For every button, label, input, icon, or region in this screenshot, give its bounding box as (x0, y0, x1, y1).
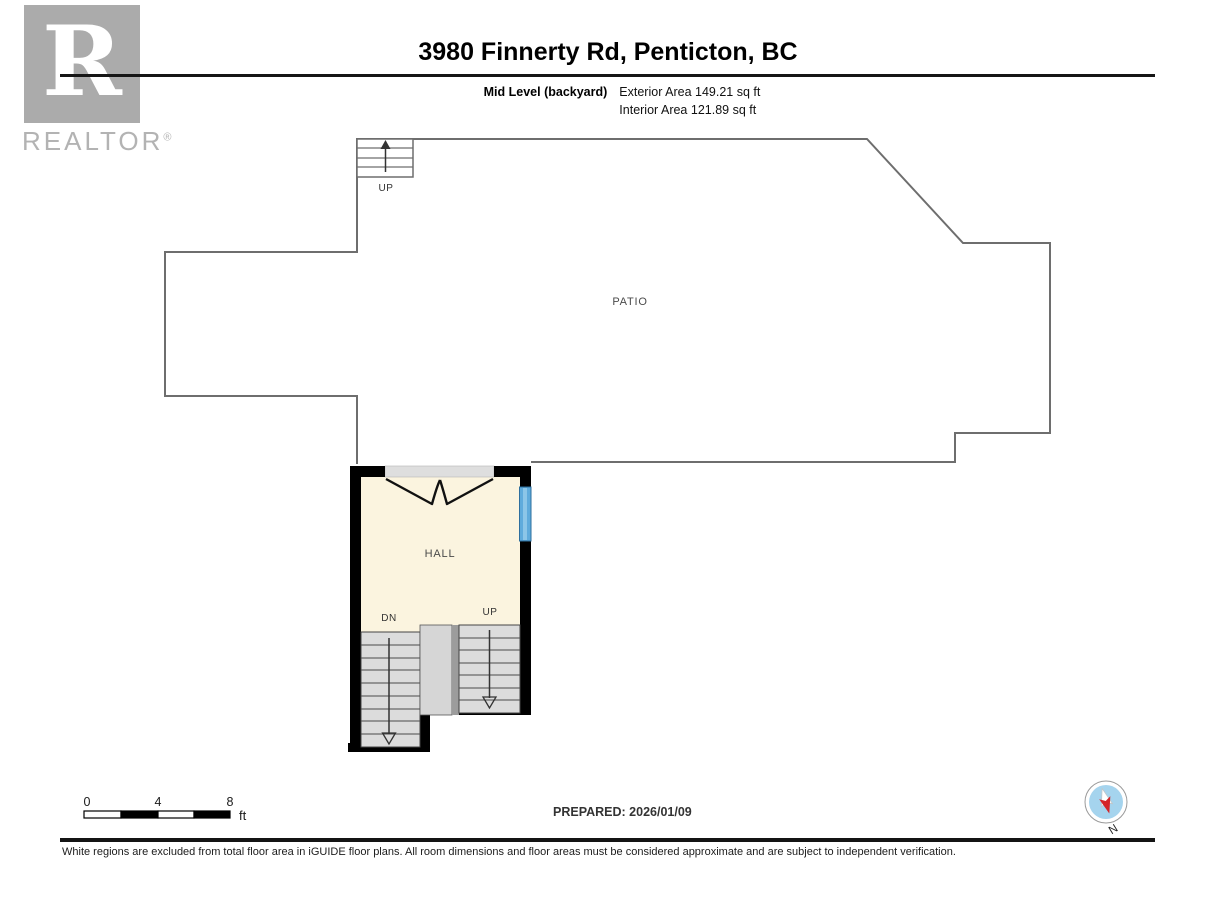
room-label-hall: HALL (425, 548, 456, 560)
floorplan-drawing: UP PATIO HALL (0, 0, 1216, 912)
stairs-up (459, 625, 520, 713)
patio-stairs-up (357, 139, 413, 177)
stair-landing (420, 625, 452, 715)
stairs-up-label: UP (483, 607, 498, 618)
scale-tick-8: 8 (227, 795, 234, 809)
footer-divider (60, 838, 1155, 842)
scale-tick-0: 0 (84, 795, 91, 809)
stairs-down-label: DN (381, 613, 396, 624)
patio-outline (165, 139, 1050, 464)
scale-bar: 0 4 8 ft (84, 795, 247, 823)
stairs-down (361, 632, 420, 747)
scale-tick-4: 4 (155, 795, 162, 809)
floorplan-page: R REALTOR® 3980 Finnerty Rd, Penticton, … (0, 0, 1216, 912)
patio-stairs-up-label: UP (379, 183, 394, 194)
door-opening-header (385, 466, 494, 477)
stair-divider (452, 625, 459, 715)
room-label-patio: PATIO (612, 296, 647, 308)
compass-icon: N (1085, 781, 1127, 837)
window (520, 487, 532, 541)
prepared-date: PREPARED: 2026/01/09 (553, 805, 692, 819)
disclaimer-text: White regions are excluded from total fl… (62, 846, 1182, 858)
scale-unit: ft (239, 808, 247, 823)
compass-north-label: N (1107, 823, 1120, 838)
